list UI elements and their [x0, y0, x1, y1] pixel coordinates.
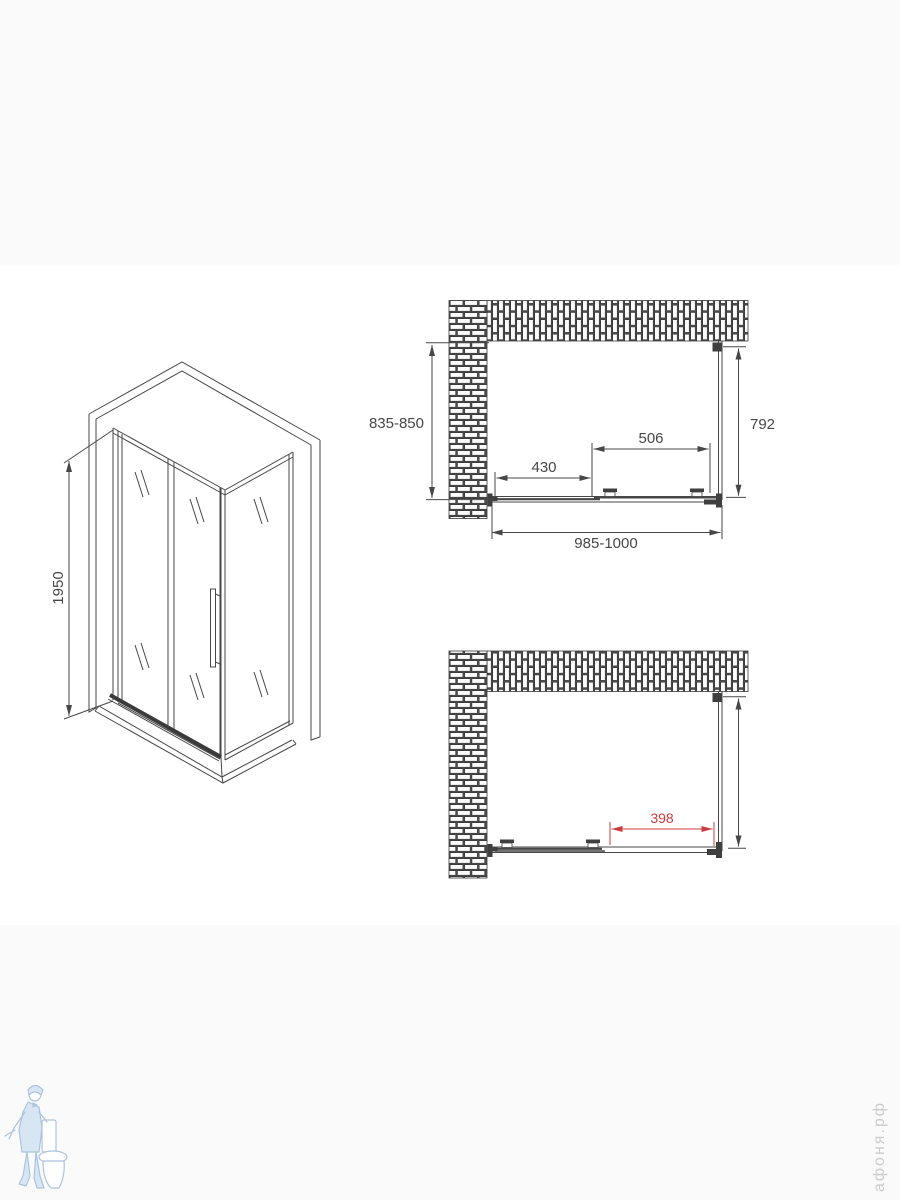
technical-drawing-canvas: 1950 — [0, 0, 900, 1200]
bottom-plan-opening-label: 398 — [650, 810, 674, 826]
bottom-plan-wall-horizontal-brick-hatch — [487, 651, 748, 692]
top-plan-fixed-panel-label: 430 — [531, 459, 556, 476]
top-plan-door-width-label: 506 — [638, 430, 663, 447]
glass-sparkle-marks — [135, 470, 268, 700]
iso-height-label: 1950 — [50, 571, 67, 604]
top-plan-door-width-dimension: 506 — [592, 430, 710, 496]
roller-carriage — [500, 840, 514, 848]
iso-bottom-track — [110, 695, 221, 757]
plumber-with-toilet-icon — [5, 1086, 67, 1189]
bottom-plan-view-drawing: 398 — [449, 651, 748, 878]
roller-carriage — [586, 840, 600, 848]
roller-carriage — [690, 489, 704, 497]
bottom-plan-wall-vertical-brick-hatch — [449, 651, 487, 878]
top-plan-width-dimension: 985-1000 — [492, 505, 723, 552]
top-plan-glass-height-dimension: 792 — [723, 347, 775, 498]
iso-height-dimension: 1950 — [50, 430, 113, 719]
top-plan-wall-horizontal-brick-hatch — [487, 301, 748, 342]
iso-shower-enclosure — [95, 428, 296, 783]
top-plan-door-track — [488, 489, 723, 508]
iso-wall-panels — [89, 362, 320, 740]
isometric-view-drawing: 1950 — [50, 362, 320, 783]
top-plan-fixed-panel-dimension: 430 — [495, 459, 591, 497]
top-plan-view-drawing: 835-850 792 506 430 — [369, 301, 775, 553]
roller-carriage — [603, 489, 617, 497]
bottom-plan-door-track — [488, 840, 723, 859]
screenshot-page: 1950 — [0, 0, 900, 1200]
top-plan-width-label: 985-1000 — [574, 535, 637, 552]
top-plan-wall-vertical-brick-hatch — [449, 301, 487, 519]
top-plan-glass-height-label: 792 — [750, 416, 775, 433]
bottom-plan-right-dimension — [723, 697, 746, 849]
watermark-brand-text: афоня.рф — [871, 1101, 888, 1192]
top-plan-depth-label: 835-850 — [369, 415, 424, 432]
iso-door-handle — [211, 589, 221, 667]
top-plan-side-panel — [713, 341, 723, 500]
bottom-plan-opening-dimension: 398 — [610, 810, 714, 846]
